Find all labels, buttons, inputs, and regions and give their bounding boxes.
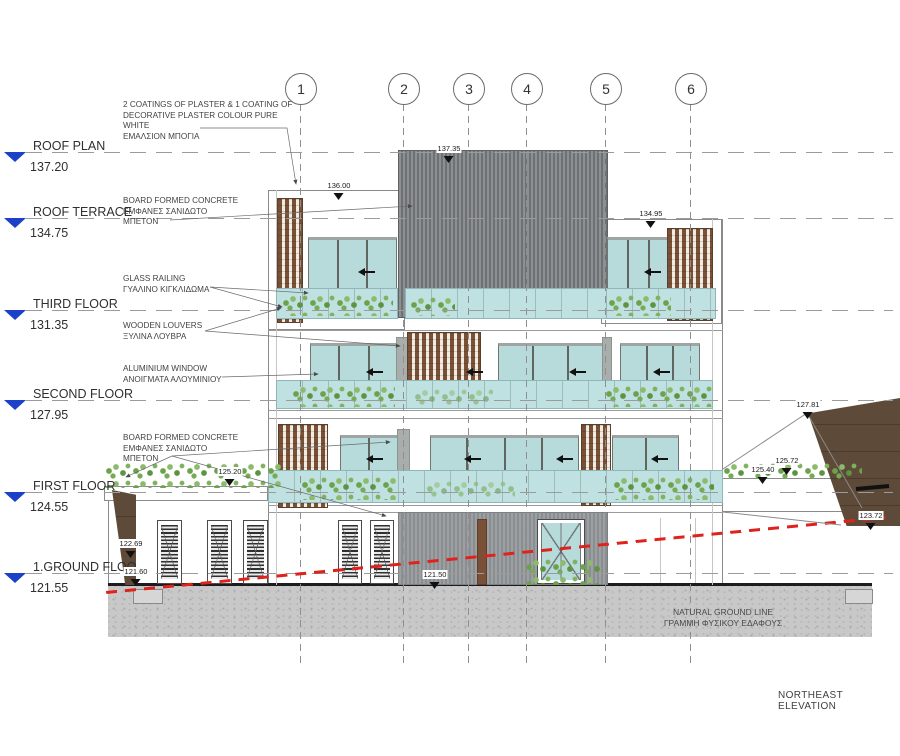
spot-elevation: 127.81 xyxy=(796,394,821,419)
annotation-line: ΑΝΟΙΓΜΑΤΑ ΑΛΟΥΜΙΝΙΟΥ xyxy=(123,375,222,386)
annotation-line: WOODEN LOUVERS xyxy=(123,321,202,332)
annotation-concrete-upper: BOARD FORMED CONCRETE ΕΜΦΑΝΕΣ ΣΑΝΙΔΩΤΟ Μ… xyxy=(123,196,238,228)
grid-line-1 xyxy=(300,104,301,665)
footing-left xyxy=(133,589,163,604)
louvered-door xyxy=(338,520,362,584)
annotation-line: ΓΡΑΜΜΗ ΦΥΣΙΚΟΥ ΕΔΑΦΟΥΣ xyxy=(648,618,798,629)
slide-direction-arrow xyxy=(653,458,668,460)
annotation-glass-railing: GLASS RAILING ΓΥΑΛΙΝΟ ΚΙΓΚΛΙΔΩΜΑ xyxy=(123,274,209,295)
grid-line-4 xyxy=(526,104,527,665)
slab-line xyxy=(268,505,723,506)
slide-direction-arrow xyxy=(360,271,375,273)
spot-triangle-icon xyxy=(430,582,440,589)
level-elevation: 137.20 xyxy=(30,160,68,174)
green-roof-vegetation xyxy=(104,462,282,488)
louvered-door xyxy=(370,520,394,584)
level-line-third-floor xyxy=(26,310,893,311)
annotation-natural-ground: NATURAL GROUND LINE ΓΡΑΜΜΗ ΦΥΣΙΚΟΥ ΕΔΑΦΟ… xyxy=(648,607,798,629)
drawing-title: NORTHEAST ELEVATION xyxy=(778,690,900,712)
level-marker-icon xyxy=(4,400,26,410)
slab-line xyxy=(268,330,723,331)
spot-triangle-icon xyxy=(334,193,344,200)
entrance-vegetation xyxy=(524,558,600,585)
level-elevation: 127.95 xyxy=(30,408,68,422)
annotation-wooden-louvers: WOODEN LOUVERS ΞΥΛΙΝΑ ΛΟΥΒΡΑ xyxy=(123,321,202,342)
wood-strip xyxy=(477,519,487,585)
aluminium-window xyxy=(607,237,670,289)
spot-elevation: 123.72 xyxy=(859,505,884,530)
footing-right xyxy=(845,589,873,604)
level-label: FIRST FLOOR xyxy=(33,479,115,493)
annotation-line: DECORATIVE PLASTER COLOUR PURE xyxy=(123,111,292,122)
spot-triangle-icon xyxy=(225,479,235,486)
louvered-door xyxy=(243,520,268,584)
planter-vegetation xyxy=(409,296,455,316)
spot-triangle-icon xyxy=(782,468,792,475)
aluminium-window xyxy=(430,435,579,471)
level-label: SECOND FLOOR xyxy=(33,387,133,401)
annotation-line: ΞΥΛΙΝΑ ΛΟΥΒΡΑ xyxy=(123,332,202,343)
planter-vegetation xyxy=(604,385,712,407)
grid-bubble-5: 5 xyxy=(590,73,622,105)
grid-bubble-2: 2 xyxy=(388,73,420,105)
spot-elevation: 137.35 xyxy=(437,138,462,163)
level-marker-icon xyxy=(4,152,26,162)
annotation-line: ALUMINIUM WINDOW xyxy=(123,364,222,375)
level-marker-icon xyxy=(4,218,26,228)
level-line-second-floor xyxy=(26,400,893,401)
planter-vegetation xyxy=(300,476,396,500)
spot-triangle-icon xyxy=(126,551,136,558)
spot-elevation: 134.95 xyxy=(639,203,664,228)
level-elevation: 124.55 xyxy=(30,500,68,514)
spot-triangle-icon xyxy=(758,477,768,484)
spot-elevation: 136.00 xyxy=(327,175,352,200)
grid-line-3 xyxy=(468,104,469,665)
level-label: ROOF PLAN xyxy=(33,139,105,153)
slide-direction-arrow xyxy=(646,271,661,273)
aluminium-window xyxy=(620,343,700,381)
grid-line-5 xyxy=(605,104,606,665)
annotation-aluminium-window: ALUMINIUM WINDOW ΑΝΟΙΓΜΑΤΑ ΑΛΟΥΜΙΝΙΟΥ xyxy=(123,364,222,385)
level-marker-icon xyxy=(4,573,26,583)
spot-triangle-icon xyxy=(866,523,876,530)
spot-elevation: 125.40 xyxy=(751,459,776,484)
annotation-line: ΕΜΦΑΝΕΣ ΣΑΝΙΔΩΤΟ xyxy=(123,444,238,455)
louvered-door xyxy=(207,520,232,584)
planter-vegetation xyxy=(413,388,493,406)
planter-vegetation xyxy=(607,294,671,316)
level-marker-icon xyxy=(4,492,26,502)
level-label: ROOF TERRACE xyxy=(33,205,132,219)
aluminium-window xyxy=(612,435,679,471)
aluminium-window xyxy=(498,343,603,381)
slide-direction-arrow xyxy=(571,371,586,373)
level-elevation: 121.55 xyxy=(30,581,68,595)
elevation-drawing-sheet: 1 2 3 4 5 6 ROOF PLAN 137.20 ROOF TERRAC… xyxy=(0,0,900,756)
concrete-pilaster xyxy=(602,337,612,381)
aluminium-window xyxy=(340,435,398,471)
planter-vegetation xyxy=(612,476,714,500)
level-line-first-floor xyxy=(26,492,893,493)
slide-direction-arrow xyxy=(558,458,573,460)
slide-direction-arrow xyxy=(368,458,383,460)
grid-line-6 xyxy=(690,104,691,665)
annotation-line: GLASS RAILING xyxy=(123,274,209,285)
planter-vegetation xyxy=(425,480,515,498)
slide-direction-arrow xyxy=(655,371,670,373)
annotation-line: ΕΜΑΛΣΙΟΝ ΜΠΟΓΙΑ xyxy=(123,132,292,143)
annotation-line: ΓΥΑΛΙΝΟ ΚΙΓΚΛΙΔΩΜΑ xyxy=(123,285,209,296)
level-line-ground-floor xyxy=(26,573,893,574)
planter-vegetation xyxy=(281,294,393,316)
spot-triangle-icon xyxy=(444,156,454,163)
level-elevation: 134.75 xyxy=(30,226,68,240)
annotation-concrete-lower: BOARD FORMED CONCRETE ΕΜΦΑΝΕΣ ΣΑΝΙΔΩΤΟ Μ… xyxy=(123,433,238,465)
annotation-line: BOARD FORMED CONCRETE xyxy=(123,433,238,444)
level-label: THIRD FLOOR xyxy=(33,297,118,311)
spot-triangle-icon xyxy=(646,221,656,228)
annotation-line: ΜΠΕΤΟΝ xyxy=(123,217,238,228)
slab-line xyxy=(268,410,723,411)
annotation-line: NATURAL GROUND LINE xyxy=(648,607,798,618)
spot-elevation: 125.72 xyxy=(775,450,800,475)
spot-elevation: 121.60 xyxy=(124,561,149,586)
spot-elevation: 125.20 xyxy=(218,461,243,486)
grid-line-2 xyxy=(403,104,404,665)
spot-elevation: 121.50 xyxy=(423,564,448,589)
annotation-line: 2 COATINGS OF PLASTER & 1 COATING OF xyxy=(123,100,292,111)
annotation-plaster: 2 COATINGS OF PLASTER & 1 COATING OF DEC… xyxy=(123,100,292,142)
slide-direction-arrow xyxy=(468,371,483,373)
grid-bubble-4: 4 xyxy=(511,73,543,105)
spot-triangle-icon xyxy=(131,579,141,586)
annotation-line: WHITE xyxy=(123,121,292,132)
annotation-line: BOARD FORMED CONCRETE xyxy=(123,196,238,207)
aluminium-window xyxy=(310,343,398,381)
level-elevation: 131.35 xyxy=(30,318,68,332)
planter-vegetation xyxy=(291,385,395,407)
slide-direction-arrow xyxy=(368,371,383,373)
spot-triangle-icon xyxy=(803,412,813,419)
grid-bubble-6: 6 xyxy=(675,73,707,105)
grid-bubble-3: 3 xyxy=(453,73,485,105)
aluminium-window xyxy=(308,237,397,289)
slide-direction-arrow xyxy=(466,458,481,460)
louvered-door xyxy=(157,520,182,584)
slab-line xyxy=(268,418,723,419)
annotation-line: ΕΜΦΑΝΕΣ ΣΑΝΙΔΩΤΟ xyxy=(123,207,238,218)
spot-elevation: 122.69 xyxy=(119,533,144,558)
level-marker-icon xyxy=(4,310,26,320)
